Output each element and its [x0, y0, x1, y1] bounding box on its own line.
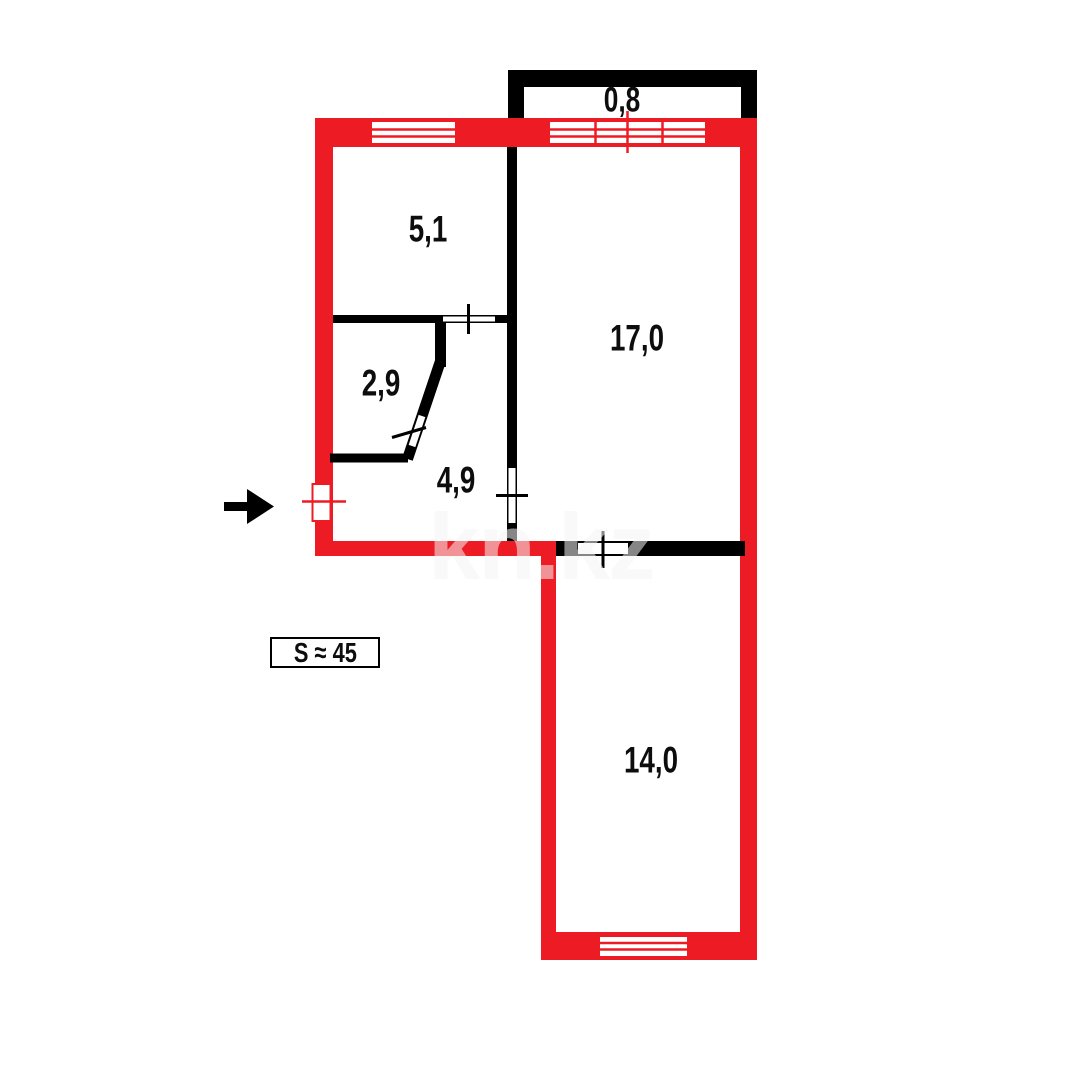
area-label-room-5-1-text: 5,1 — [409, 211, 448, 248]
wall-closet-bottom — [330, 454, 408, 463]
floor-plan: kn.kz 0,8 5,1 2,9 4,9 17,0 14,0 S ≈ 45 — [0, 0, 1080, 1080]
area-label-hallway-4-9-text: 4,9 — [437, 462, 476, 499]
window-room-14-0 — [600, 937, 687, 956]
area-label-balcony: 0,8 — [598, 83, 647, 118]
area-label-room-14-0-text: 14,0 — [624, 742, 678, 779]
area-label-balcony-text: 0,8 — [604, 83, 640, 118]
window-glass — [372, 122, 455, 143]
watermark: kn.kz — [428, 500, 653, 594]
wall-room14-left — [541, 541, 556, 960]
area-label-hallway-4-9: 4,9 — [430, 462, 481, 499]
window-room-5-1 — [372, 122, 455, 143]
area-label-room-5-1: 5,1 — [402, 211, 453, 248]
entrance-door — [302, 484, 346, 521]
area-label-room-2-9: 2,9 — [355, 365, 406, 402]
area-label-room-17-0: 17,0 — [601, 320, 673, 357]
wall-right — [740, 118, 757, 960]
window-glass — [600, 937, 687, 956]
balcony-wall-left — [508, 70, 524, 118]
area-label-room-14-0: 14,0 — [615, 742, 687, 779]
total-area-box: S ≈ 45 — [270, 637, 380, 668]
total-area-label: S ≈ 45 — [294, 637, 357, 669]
area-label-room-2-9-text: 2,9 — [362, 365, 401, 402]
area-label-room-17-0-text: 17,0 — [610, 320, 664, 357]
entrance-arrow-icon — [224, 489, 274, 524]
entrance-arrow-head — [247, 489, 274, 524]
balcony-wall-right — [741, 70, 757, 118]
